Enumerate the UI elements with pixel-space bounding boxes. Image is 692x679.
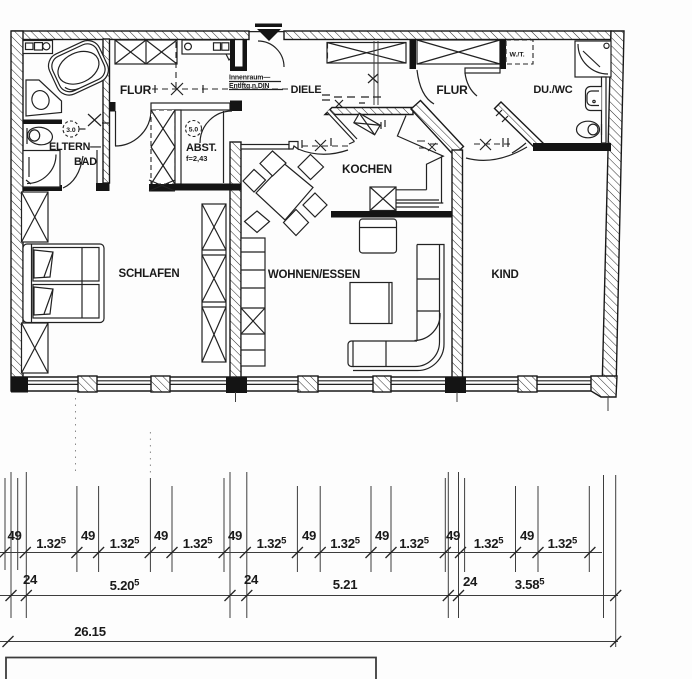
svg-text:DIELE: DIELE bbox=[291, 84, 322, 96]
svg-text:WOHNEN/ESSEN: WOHNEN/ESSEN bbox=[268, 269, 360, 281]
svg-text:49: 49 bbox=[7, 528, 21, 543]
svg-text:SCHLAFEN: SCHLAFEN bbox=[118, 268, 179, 280]
svg-text:49: 49 bbox=[81, 528, 95, 543]
svg-text:W./T.: W./T. bbox=[510, 52, 525, 59]
svg-text:5.0: 5.0 bbox=[189, 127, 199, 134]
svg-text:5.21: 5.21 bbox=[333, 577, 357, 592]
svg-text:49: 49 bbox=[302, 528, 316, 543]
svg-text:24: 24 bbox=[244, 572, 259, 587]
svg-text:ELTERN—: ELTERN— bbox=[49, 141, 101, 153]
svg-text:49: 49 bbox=[228, 528, 242, 543]
svg-text:FLUR: FLUR bbox=[120, 83, 152, 97]
svg-text:ABST.: ABST. bbox=[186, 142, 217, 154]
svg-text:26.15: 26.15 bbox=[74, 624, 106, 639]
svg-text:DU./WC: DU./WC bbox=[533, 84, 572, 96]
svg-text:49: 49 bbox=[154, 528, 168, 543]
svg-text:f=2,43: f=2,43 bbox=[186, 154, 207, 163]
svg-text:49: 49 bbox=[375, 528, 389, 543]
svg-text:49: 49 bbox=[520, 528, 534, 543]
svg-text:3.0: 3.0 bbox=[66, 127, 76, 134]
svg-text:Innenraum—: Innenraum— bbox=[229, 75, 270, 82]
svg-text:24: 24 bbox=[23, 572, 38, 587]
svg-text:49: 49 bbox=[446, 528, 460, 543]
svg-text:BAD: BAD bbox=[74, 156, 97, 168]
svg-text:24: 24 bbox=[463, 574, 478, 589]
svg-text:KIND: KIND bbox=[491, 269, 518, 281]
svg-text:FLUR: FLUR bbox=[436, 83, 468, 97]
svg-text:KOCHEN: KOCHEN bbox=[342, 162, 392, 176]
